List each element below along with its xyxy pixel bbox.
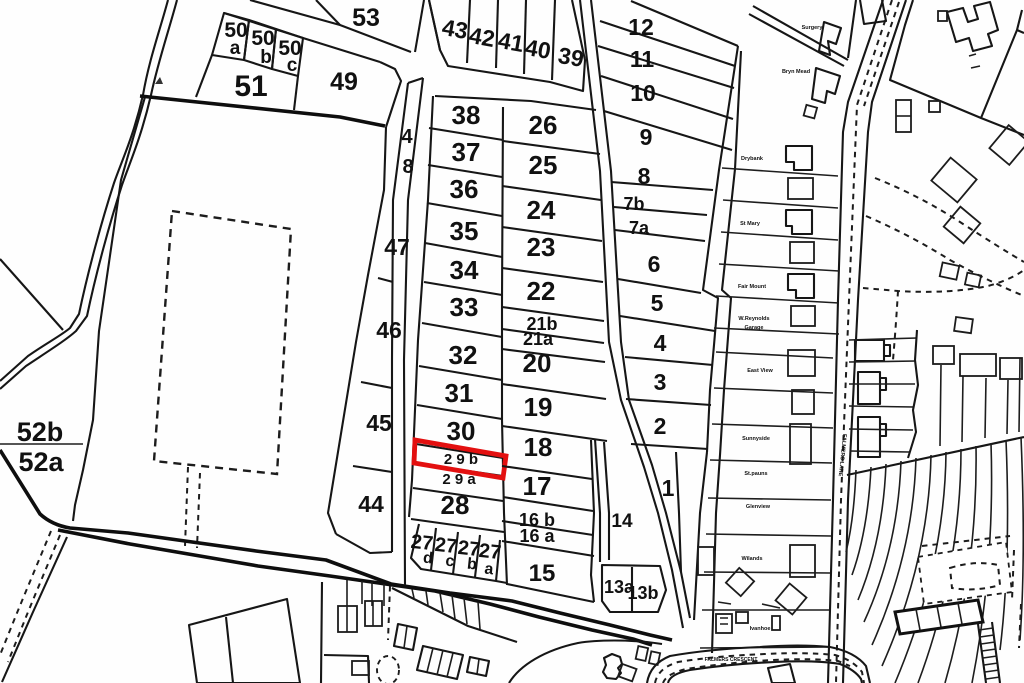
svg-text:FALMERS CRESCENT: FALMERS CRESCENT	[705, 657, 758, 663]
svg-text:30: 30	[447, 416, 476, 446]
svg-text:45: 45	[366, 410, 392, 436]
svg-text:44: 44	[358, 491, 384, 517]
svg-text:d: d	[422, 550, 434, 568]
svg-text:37: 37	[452, 137, 481, 167]
svg-text:19: 19	[524, 392, 553, 422]
svg-text:W.Reynolds: W.Reynolds	[738, 316, 769, 322]
svg-text:9: 9	[640, 124, 653, 150]
svg-text:b: b	[260, 47, 272, 68]
svg-text:c: c	[445, 553, 456, 571]
svg-text:2 9 b: 2 9 b	[444, 451, 478, 468]
svg-text:18: 18	[524, 432, 553, 462]
svg-text:East View: East View	[747, 368, 773, 374]
svg-text:16 a: 16 a	[519, 526, 555, 546]
svg-text:12: 12	[628, 14, 654, 40]
svg-text:c: c	[287, 55, 298, 76]
svg-text:a: a	[230, 38, 241, 59]
svg-text:Drybank: Drybank	[741, 156, 764, 162]
svg-text:40: 40	[523, 34, 553, 64]
svg-text:20: 20	[523, 348, 552, 378]
svg-text:St Mary: St Mary	[740, 221, 761, 227]
svg-text:1: 1	[662, 475, 675, 501]
svg-text:47: 47	[384, 234, 410, 260]
svg-text:52b: 52b	[17, 417, 64, 447]
svg-text:Ivanhoe: Ivanhoe	[750, 626, 771, 632]
svg-text:38: 38	[452, 100, 481, 130]
svg-text:4: 4	[654, 330, 667, 356]
svg-text:53: 53	[352, 4, 380, 32]
svg-text:43: 43	[440, 14, 470, 44]
svg-text:6: 6	[648, 251, 661, 277]
svg-text:17: 17	[523, 471, 552, 501]
svg-text:41: 41	[496, 27, 526, 57]
svg-text:24: 24	[527, 195, 556, 225]
svg-text:22: 22	[527, 276, 556, 306]
svg-text:Wilands: Wilands	[741, 556, 762, 562]
svg-text:51: 51	[234, 70, 267, 103]
svg-text:8: 8	[402, 156, 413, 178]
svg-text:31: 31	[445, 378, 474, 408]
svg-text:3: 3	[654, 369, 667, 395]
svg-text:8: 8	[638, 163, 651, 189]
svg-text:33: 33	[450, 292, 479, 322]
svg-text:52a: 52a	[18, 447, 64, 477]
svg-text:Surgery: Surgery	[802, 25, 824, 31]
svg-text:28: 28	[441, 490, 470, 520]
svg-text:7a: 7a	[629, 218, 650, 238]
svg-text:23: 23	[527, 232, 556, 262]
svg-text:4: 4	[401, 126, 413, 148]
svg-text:Fair Mount: Fair Mount	[738, 284, 766, 290]
svg-text:11: 11	[630, 46, 655, 72]
svg-text:26: 26	[529, 110, 558, 140]
svg-text:14: 14	[611, 511, 633, 532]
svg-text:St.pauns: St.pauns	[744, 471, 767, 477]
svg-text:Garage: Garage	[745, 325, 764, 331]
svg-text:49: 49	[330, 68, 358, 96]
svg-text:25: 25	[529, 150, 558, 180]
svg-text:Bryn Mead: Bryn Mead	[782, 69, 810, 75]
svg-text:Sunnyside: Sunnyside	[742, 436, 770, 442]
svg-text:5: 5	[651, 290, 664, 316]
svg-text:32: 32	[449, 340, 478, 370]
svg-text:46: 46	[376, 317, 402, 343]
svg-text:39: 39	[556, 42, 586, 72]
svg-text:a: a	[484, 561, 495, 579]
svg-text:13b: 13b	[627, 583, 658, 603]
svg-text:21a: 21a	[523, 329, 554, 349]
svg-text:35: 35	[450, 216, 479, 246]
svg-text:36: 36	[450, 174, 479, 204]
svg-text:Glenview: Glenview	[746, 504, 771, 510]
svg-text:10: 10	[630, 80, 656, 106]
svg-text:b: b	[466, 556, 478, 574]
svg-text:15: 15	[529, 560, 556, 587]
svg-text:2: 2	[654, 413, 667, 439]
svg-text:7b: 7b	[623, 194, 644, 214]
svg-text:42: 42	[467, 22, 497, 52]
svg-text:34: 34	[450, 255, 479, 285]
